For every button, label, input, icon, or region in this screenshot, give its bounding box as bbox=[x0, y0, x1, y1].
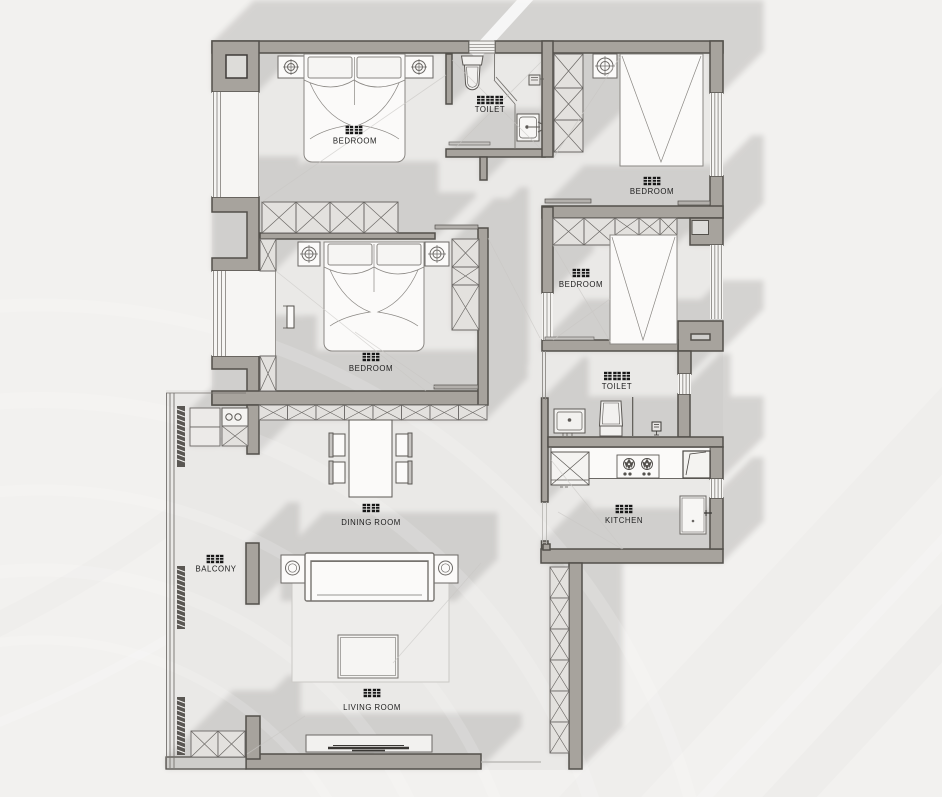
svg-text:LIVING ROOM: LIVING ROOM bbox=[343, 703, 401, 712]
svg-text:DINING ROOM: DINING ROOM bbox=[341, 518, 401, 527]
svg-text:BEDROOM: BEDROOM bbox=[349, 364, 393, 373]
svg-text:BALCONY: BALCONY bbox=[195, 565, 236, 574]
svg-text:TOILET: TOILET bbox=[602, 382, 632, 391]
svg-text:BEDROOM: BEDROOM bbox=[630, 187, 674, 196]
svg-text:TOILET: TOILET bbox=[475, 105, 505, 114]
svg-text:BEDROOM: BEDROOM bbox=[559, 280, 603, 289]
svg-text:KITCHEN: KITCHEN bbox=[605, 516, 643, 525]
svg-text:BEDROOM: BEDROOM bbox=[333, 137, 377, 146]
